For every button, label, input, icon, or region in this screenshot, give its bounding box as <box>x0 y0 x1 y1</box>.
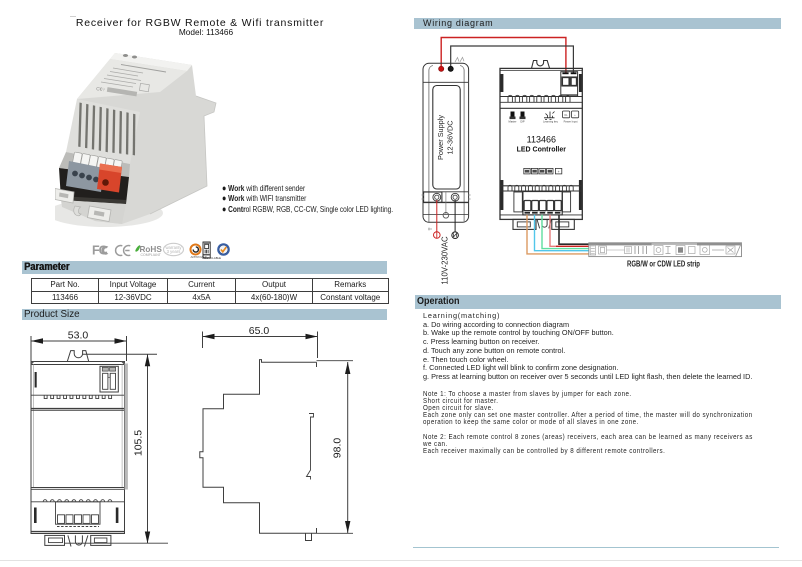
svg-text:Learning key: Learning key <box>543 119 559 123</box>
svg-text:+: + <box>558 170 560 174</box>
svg-text:DL: DL <box>564 114 568 117</box>
svg-text:98.0: 98.0 <box>332 438 344 459</box>
svg-text:+: + <box>574 114 576 117</box>
svg-text:DIP: DIP <box>520 119 525 123</box>
svg-text:113466: 113466 <box>527 135 556 145</box>
svg-text:RGB/W or CDW LED strip: RGB/W or CDW LED strip <box>627 260 700 269</box>
svg-text:110V-230VAC: 110V-230VAC <box>441 236 450 285</box>
svg-text:105.5: 105.5 <box>133 430 145 456</box>
svg-text:LED Controller: LED Controller <box>517 147 567 154</box>
svg-text:RoHS: RoHS <box>140 245 163 254</box>
svg-text:Power Input: Power Input <box>564 119 578 123</box>
svg-text:53.0: 53.0 <box>68 330 89 342</box>
svg-text:12-36VDC: 12-36VDC <box>445 120 454 154</box>
svg-text:RECYCLABLE: RECYCLABLE <box>203 256 222 260</box>
svg-text:FC: FC <box>92 244 108 258</box>
svg-text:65.0: 65.0 <box>249 325 270 337</box>
svg-text:Master: Master <box>509 119 517 123</box>
svg-text:3 years: 3 years <box>167 249 181 254</box>
svg-text:Power Supply: Power Supply <box>436 115 445 160</box>
svg-text:COMPLIANT: COMPLIANT <box>141 253 162 257</box>
